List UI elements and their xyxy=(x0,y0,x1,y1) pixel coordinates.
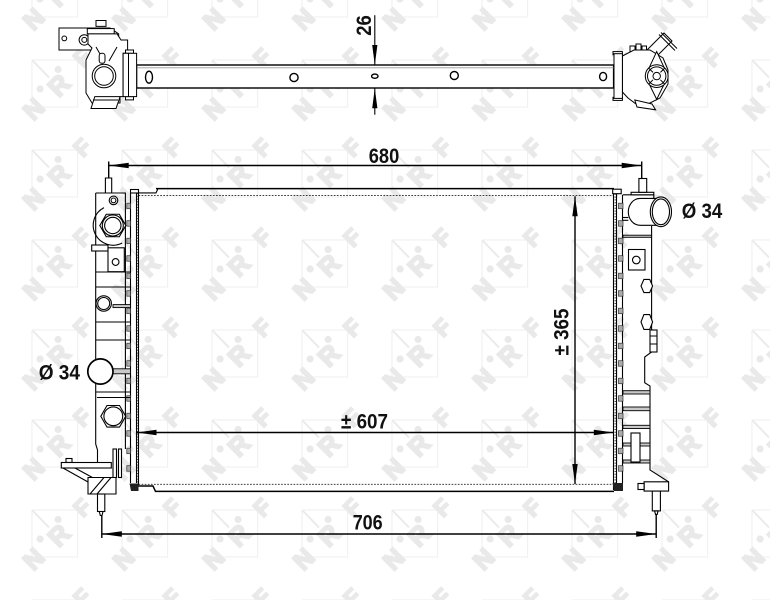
svg-text:706: 706 xyxy=(353,512,383,535)
svg-text:± 365: ± 365 xyxy=(551,308,574,355)
svg-text:680: 680 xyxy=(369,145,400,168)
svg-text:Ø 34: Ø 34 xyxy=(682,200,723,223)
svg-text:Ø 34: Ø 34 xyxy=(39,362,81,385)
svg-text:26: 26 xyxy=(353,15,376,36)
svg-text:± 607: ± 607 xyxy=(341,411,388,434)
